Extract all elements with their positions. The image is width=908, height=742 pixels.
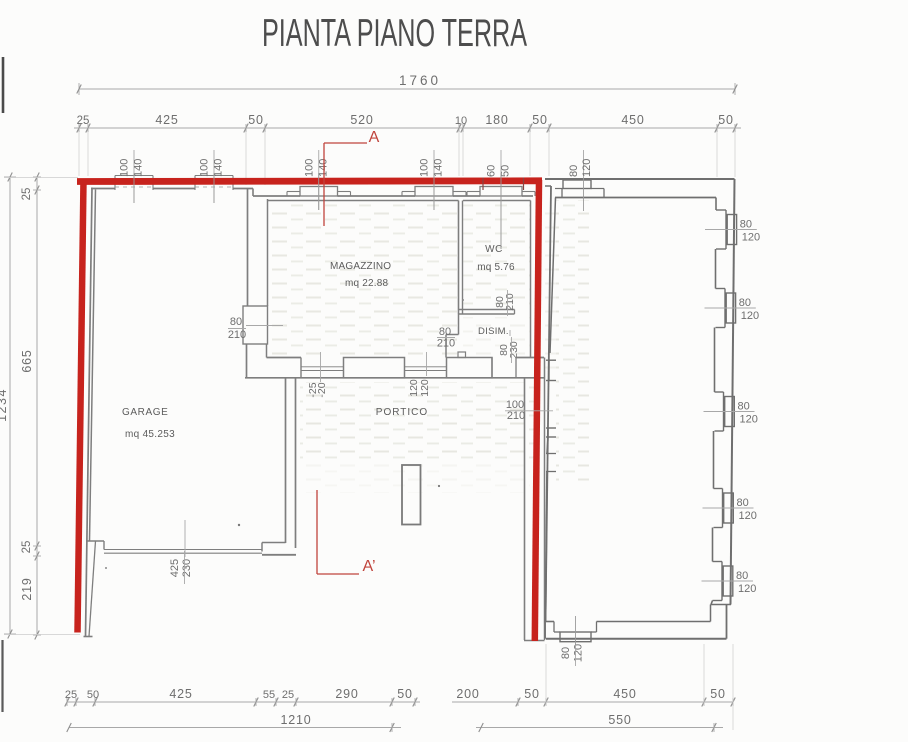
svg-text:120: 120 xyxy=(739,510,757,522)
svg-text:80: 80 xyxy=(740,219,752,231)
svg-text:50: 50 xyxy=(710,687,726,701)
svg-text:120: 120 xyxy=(573,644,585,662)
svg-text:PORTICO: PORTICO xyxy=(376,407,428,418)
svg-text:25: 25 xyxy=(77,115,90,127)
svg-text:80: 80 xyxy=(568,165,580,177)
svg-text:520: 520 xyxy=(350,113,373,127)
svg-text:WC: WC xyxy=(485,244,503,255)
svg-text:80: 80 xyxy=(738,401,750,413)
svg-text:GARAGE: GARAGE xyxy=(122,407,168,418)
svg-text:120: 120 xyxy=(740,414,758,426)
svg-text:A: A xyxy=(369,129,380,146)
svg-text:A’: A’ xyxy=(362,558,375,575)
svg-text:450: 450 xyxy=(613,687,636,701)
svg-text:25: 25 xyxy=(282,689,294,701)
svg-text:50: 50 xyxy=(87,689,99,701)
svg-text:665: 665 xyxy=(20,349,34,372)
svg-text:50: 50 xyxy=(397,687,413,701)
svg-text:-20: -20 xyxy=(316,382,328,397)
svg-text:50: 50 xyxy=(248,113,264,127)
svg-text:210: 210 xyxy=(437,338,455,350)
svg-text:425: 425 xyxy=(169,559,181,577)
svg-text:mq 5.76: mq 5.76 xyxy=(477,262,515,273)
svg-text:210: 210 xyxy=(507,410,525,422)
svg-text:50: 50 xyxy=(718,113,734,127)
svg-text:25: 25 xyxy=(21,188,33,201)
svg-text:120: 120 xyxy=(742,232,760,244)
svg-text:210: 210 xyxy=(504,293,516,311)
svg-text:180: 180 xyxy=(485,113,508,127)
svg-text:1234: 1234 xyxy=(0,388,9,422)
svg-text:120: 120 xyxy=(419,379,431,397)
svg-text:100: 100 xyxy=(419,159,431,177)
svg-text:100: 100 xyxy=(119,159,131,177)
svg-text:mq 45.253: mq 45.253 xyxy=(125,429,175,440)
svg-text:550: 550 xyxy=(608,713,631,727)
svg-text:1760: 1760 xyxy=(399,73,441,88)
svg-text:425: 425 xyxy=(169,687,192,701)
svg-text:55: 55 xyxy=(263,689,275,701)
svg-text:mq 22.88: mq 22.88 xyxy=(345,278,389,289)
svg-text:230: 230 xyxy=(181,559,193,577)
svg-text:120: 120 xyxy=(741,310,759,322)
svg-text:50: 50 xyxy=(524,687,540,701)
svg-text:50: 50 xyxy=(532,113,548,127)
svg-text:219: 219 xyxy=(20,577,34,600)
svg-text:80: 80 xyxy=(737,497,749,509)
svg-text:120: 120 xyxy=(581,159,593,177)
svg-text:25: 25 xyxy=(21,541,33,554)
svg-text:MAGAZZINO: MAGAZZINO xyxy=(330,261,391,272)
svg-text:290: 290 xyxy=(335,687,358,701)
svg-text:60: 60 xyxy=(486,165,498,177)
svg-text:80: 80 xyxy=(230,316,242,328)
svg-text:80: 80 xyxy=(739,297,751,309)
svg-text:80: 80 xyxy=(736,570,748,582)
svg-text:450: 450 xyxy=(621,113,644,127)
svg-text:DISIM.: DISIM. xyxy=(478,326,509,337)
svg-text:80: 80 xyxy=(439,326,451,338)
svg-text:25: 25 xyxy=(65,689,77,701)
svg-text:100: 100 xyxy=(303,159,315,177)
svg-text:200: 200 xyxy=(456,687,479,701)
svg-text:210: 210 xyxy=(228,329,246,341)
svg-text:1210: 1210 xyxy=(280,713,311,727)
svg-text:PIANTA PIANO TERRA: PIANTA PIANO TERRA xyxy=(262,12,527,55)
svg-text:10: 10 xyxy=(455,115,467,127)
svg-text:80: 80 xyxy=(560,647,572,659)
svg-text:230: 230 xyxy=(508,341,520,359)
svg-text:425: 425 xyxy=(155,113,178,127)
svg-text:120: 120 xyxy=(738,583,756,595)
svg-text:100: 100 xyxy=(199,159,211,177)
